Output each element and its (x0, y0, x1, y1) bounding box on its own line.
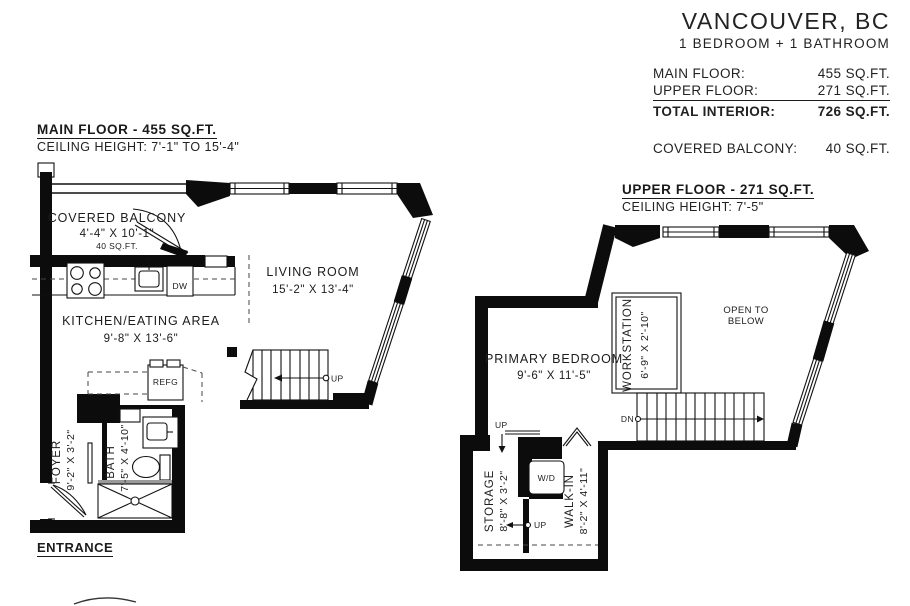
city-title: VANCOUVER, BC (682, 8, 890, 35)
row-value: 455 SQ.FT. (818, 66, 890, 83)
workstation-label: WORKSTATION (622, 298, 634, 392)
kitchen-dims: 9'-8" X 13'-6" (104, 333, 179, 345)
logo-fragment (68, 592, 143, 606)
main-floor-ceiling: CEILING HEIGHT: 7'-1" TO 15'-4" (37, 140, 239, 154)
dn-label: DN (621, 414, 634, 424)
bath-sink (143, 417, 178, 448)
floorplan-page: VANCOUVER, BC 1 BEDROOM + 1 BATHROOM MAI… (0, 0, 910, 606)
row-label: TOTAL INTERIOR: (653, 104, 775, 121)
dishwasher: DW (167, 266, 193, 296)
column-post (227, 347, 237, 357)
walkin-dims: 8'-2" X 4'-11" (578, 468, 590, 535)
stairs-down: DN (621, 393, 764, 441)
window-diagonal (403, 219, 430, 279)
row-value: 271 SQ.FT. (818, 83, 890, 100)
row-value: 40 SQ.FT. (826, 141, 890, 156)
refrigerator: REFG (148, 360, 183, 400)
walkin-label: WALK-IN (564, 474, 576, 528)
toilet (133, 455, 171, 480)
unit-type: 1 BEDROOM + 1 BATHROOM (679, 36, 890, 51)
window-diagonal (793, 359, 822, 426)
row-label: MAIN FLOOR: (653, 66, 745, 83)
kitchen-counter (32, 267, 235, 295)
bath-niche (120, 409, 140, 422)
upper-floor-walls (460, 225, 869, 571)
foyer-dims: 9'-2" X 3'-2" (65, 429, 77, 490)
workstation-dims: 6'-9" X 2'-10" (639, 311, 651, 379)
up-label: UP (495, 420, 508, 430)
row-label: UPPER FLOOR: (653, 83, 758, 100)
upper-floor-heading: UPPER FLOOR - 271 SQ.FT. CEILING HEIGHT:… (622, 182, 814, 214)
closet-door-chevron (563, 428, 591, 446)
up-label: UP (534, 520, 547, 530)
area-summary-table: MAIN FLOOR: 455 SQ.FT. UPPER FLOOR: 271 … (653, 66, 890, 121)
bath-label: BATH (105, 445, 117, 478)
upper-floor-title: UPPER FLOOR - 271 SQ.FT. (622, 182, 814, 197)
foyer-label: FOYER (51, 440, 63, 484)
main-floor-title: MAIN FLOOR - 455 SQ.FT. (37, 122, 239, 137)
storage-dims: 8'-8" X 3'-2" (498, 470, 510, 531)
up-label: UP (331, 374, 344, 384)
main-floor-heading: MAIN FLOOR - 455 SQ.FT. CEILING HEIGHT: … (37, 122, 239, 154)
balcony-dims: 4'-4" X 10'-1" (80, 228, 155, 240)
stove (67, 263, 104, 298)
table-row-total-interior: TOTAL INTERIOR: 726 SQ.FT. (653, 104, 890, 121)
svg-text:REFG: REFG (153, 377, 178, 387)
upper-floor-plan: W/D UP UP (455, 218, 910, 583)
washer-dryer: W/D (529, 461, 564, 494)
main-floor-plan: DW REFG UP (20, 156, 440, 568)
balcony-label: COVERED BALCONY (48, 211, 187, 225)
shower (98, 480, 172, 518)
kitchen-label: KITCHEN/EATING AREA (62, 314, 220, 328)
open-to-below-label: OPEN TO (723, 305, 768, 316)
workstation-desk: WORKSTATION 6'-9" X 2'-10" (612, 293, 681, 393)
svg-text:DW: DW (173, 281, 188, 291)
row-value: 726 SQ.FT. (818, 104, 890, 121)
svg-text:W/D: W/D (538, 473, 556, 483)
stair-break-line (245, 350, 257, 400)
table-row-main-floor: MAIN FLOOR: 455 SQ.FT. (653, 66, 890, 83)
living-room-label: LIVING ROOM (266, 265, 359, 279)
living-room-dims: 15'-2" X 13'-4" (272, 284, 354, 296)
window-diagonal (369, 302, 404, 384)
bath-door-leaf (88, 443, 92, 483)
entrance-label: ENTRANCE (37, 540, 113, 555)
table-row-upper-floor: UPPER FLOOR: 271 SQ.FT. (653, 83, 890, 102)
bath-dims: 7'-5" X 4'-10" (119, 424, 131, 492)
svg-text:BELOW: BELOW (728, 316, 764, 327)
row-label: COVERED BALCONY: (653, 141, 797, 156)
wall-niche (205, 256, 227, 267)
bedroom-dims: 9'-6" X 11'-5" (517, 370, 591, 382)
upper-floor-ceiling: CEILING HEIGHT: 7'-5" (622, 200, 814, 214)
window-diagonal (824, 253, 855, 324)
storage-label: STORAGE (484, 470, 496, 532)
bedroom-label: PRIMARY BEDROOM (485, 352, 623, 366)
table-row-covered-balcony: COVERED BALCONY: 40 SQ.FT. (653, 141, 890, 156)
balcony-area: 40 SQ.FT. (96, 241, 138, 251)
stairs-up: UP (245, 350, 344, 400)
